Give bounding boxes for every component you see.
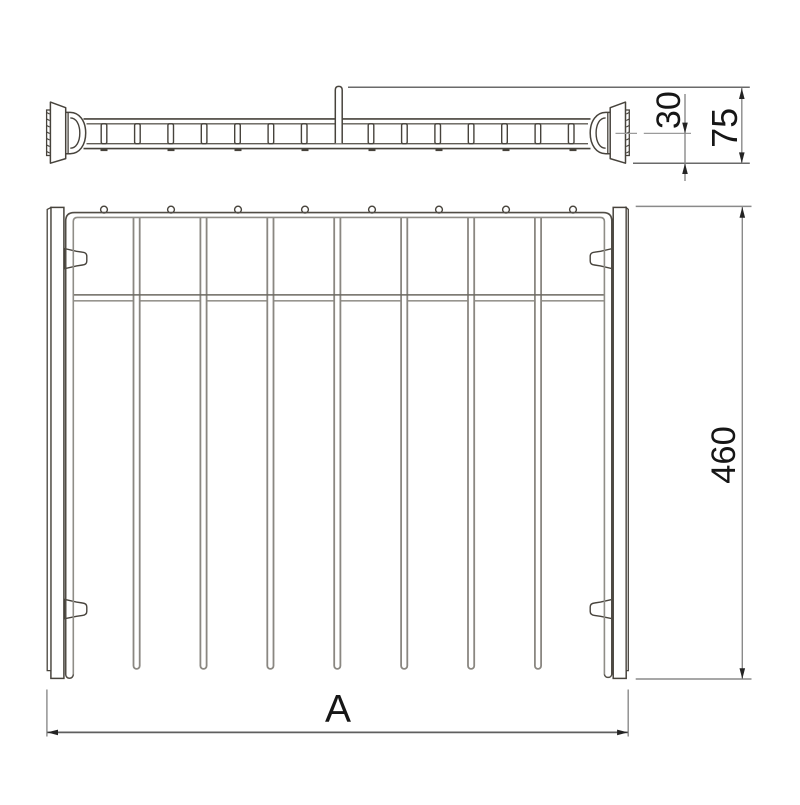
svg-text:A: A: [325, 688, 351, 731]
svg-text:75: 75: [704, 108, 745, 148]
svg-text:30: 30: [650, 91, 688, 129]
svg-text:460: 460: [705, 426, 743, 484]
